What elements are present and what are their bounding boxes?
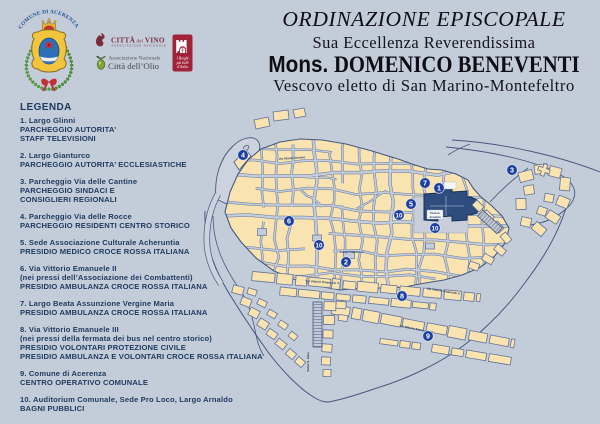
svg-text:10: 10 [316, 242, 323, 249]
svg-text:2: 2 [344, 257, 348, 266]
svg-text:8: 8 [400, 291, 404, 300]
svg-text:Arnaldo: Arnaldo [429, 215, 441, 219]
svg-text:4: 4 [241, 150, 245, 159]
svg-text:Largo Gianturco: Largo Gianturco [340, 250, 364, 254]
svg-text:10: 10 [396, 212, 403, 219]
svg-text:1: 1 [437, 183, 441, 192]
svg-text:Salita S. Italia: Salita S. Italia [306, 352, 310, 372]
svg-text:10: 10 [432, 225, 439, 232]
svg-text:5: 5 [409, 199, 413, 208]
svg-text:6: 6 [287, 216, 291, 225]
svg-text:7: 7 [423, 178, 427, 187]
svg-text:9: 9 [426, 331, 430, 340]
svg-text:3: 3 [510, 165, 514, 174]
